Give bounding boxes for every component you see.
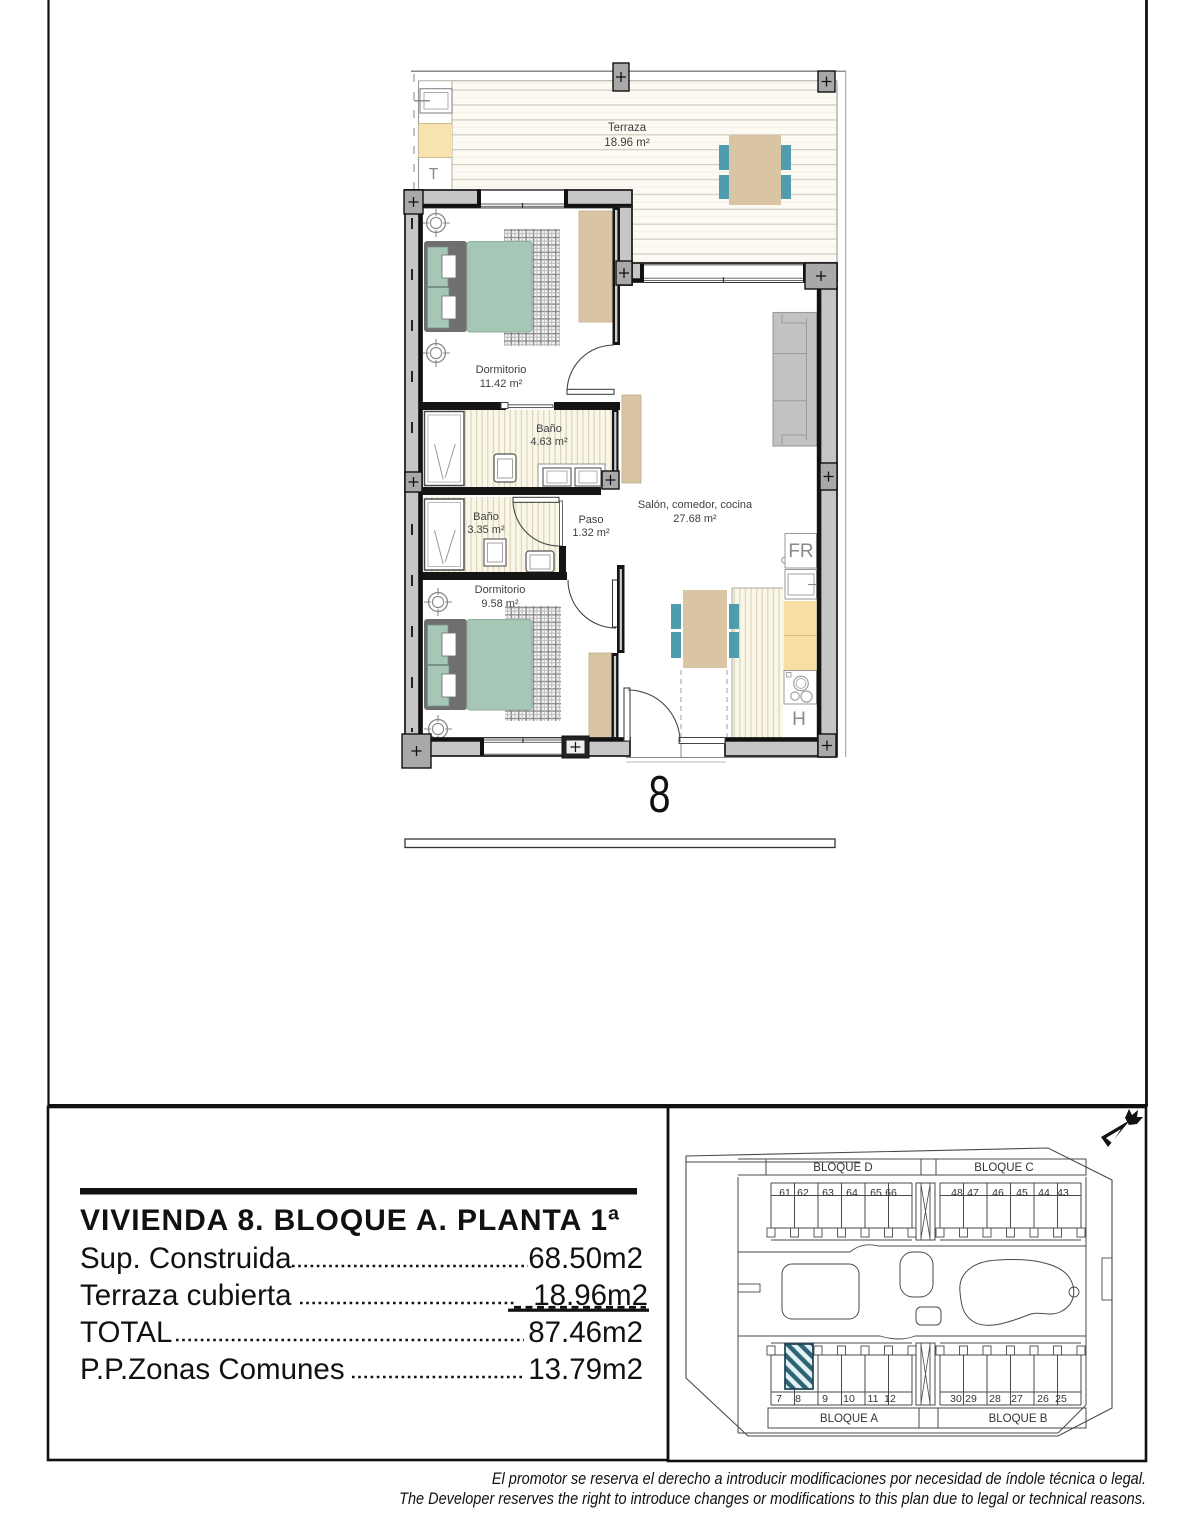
svg-text:64: 64 (846, 1187, 858, 1199)
svg-text:47: 47 (967, 1187, 979, 1199)
svg-text:63: 63 (822, 1187, 834, 1199)
svg-text:8: 8 (795, 1393, 801, 1405)
svg-text:El promotor se reserva el dere: El promotor se reserva el derecho a intr… (492, 1470, 1146, 1488)
svg-text:4.63 m²: 4.63 m² (530, 436, 568, 448)
svg-text:VIVIENDA 8. BLOQUE A. PLANTA 1: VIVIENDA 8. BLOQUE A. PLANTA 1ª (80, 1204, 620, 1237)
svg-text:H: H (792, 709, 806, 730)
svg-text:BLOQUE A: BLOQUE A (820, 1413, 878, 1425)
svg-text:12: 12 (884, 1393, 896, 1405)
svg-text:Terraza: Terraza (608, 122, 647, 134)
svg-text:18.96 m²: 18.96 m² (604, 137, 650, 149)
svg-text:FR: FR (788, 541, 813, 562)
svg-text:61: 61 (779, 1187, 791, 1199)
svg-text:87.46m2: 87.46m2 (528, 1316, 643, 1349)
svg-text:13.79m2: 13.79m2 (528, 1353, 643, 1386)
svg-text:43: 43 (1057, 1187, 1069, 1199)
svg-text:Dormitorio: Dormitorio (475, 584, 526, 596)
svg-text:28: 28 (989, 1393, 1001, 1405)
svg-text:65: 65 (870, 1187, 882, 1199)
svg-text:27.68 m²: 27.68 m² (673, 513, 717, 525)
svg-text:Salón, comedor, cocina: Salón, comedor, cocina (638, 499, 753, 511)
svg-text:30: 30 (950, 1393, 962, 1405)
svg-text:7: 7 (776, 1393, 782, 1405)
svg-text:48: 48 (951, 1187, 963, 1199)
svg-text:Paso: Paso (578, 514, 603, 526)
svg-text:26: 26 (1037, 1393, 1049, 1405)
svg-text:9.58 m²: 9.58 m² (481, 598, 519, 610)
svg-text:Terraza cubierta: Terraza cubierta (80, 1279, 292, 1312)
svg-text:BLOQUE B: BLOQUE B (989, 1413, 1048, 1425)
svg-text:45: 45 (1016, 1187, 1028, 1199)
svg-text:29: 29 (965, 1393, 977, 1405)
svg-text:P.P.Zonas Comunes: P.P.Zonas Comunes (80, 1353, 345, 1386)
svg-text:Sup. Construida: Sup. Construida (80, 1242, 292, 1275)
svg-text:11: 11 (868, 1393, 879, 1405)
svg-text:8: 8 (649, 766, 671, 824)
svg-text:10: 10 (843, 1393, 855, 1405)
svg-text:66: 66 (885, 1187, 897, 1199)
svg-text:3.35 m²: 3.35 m² (467, 524, 505, 536)
svg-text:Baño: Baño (473, 511, 499, 523)
svg-text:BLOQUE D: BLOQUE D (813, 1162, 872, 1174)
svg-text:44: 44 (1038, 1187, 1050, 1199)
svg-text:46: 46 (992, 1187, 1004, 1199)
svg-text:Baño: Baño (536, 423, 562, 435)
svg-text:T: T (429, 166, 439, 183)
svg-text:Dormitorio: Dormitorio (476, 364, 527, 376)
svg-text:27: 27 (1011, 1393, 1023, 1405)
svg-text:TOTAL: TOTAL (80, 1316, 172, 1349)
svg-text:9: 9 (822, 1393, 828, 1405)
svg-text:The Developer reserves the rig: The Developer reserves the right to intr… (399, 1490, 1146, 1508)
svg-text:BLOQUE C: BLOQUE C (974, 1162, 1033, 1174)
svg-text:68.50m2: 68.50m2 (528, 1242, 643, 1275)
svg-text:25: 25 (1055, 1393, 1067, 1405)
svg-text:62: 62 (797, 1187, 809, 1199)
svg-text:1.32 m²: 1.32 m² (572, 527, 610, 539)
svg-text:11.42 m²: 11.42 m² (480, 378, 523, 390)
